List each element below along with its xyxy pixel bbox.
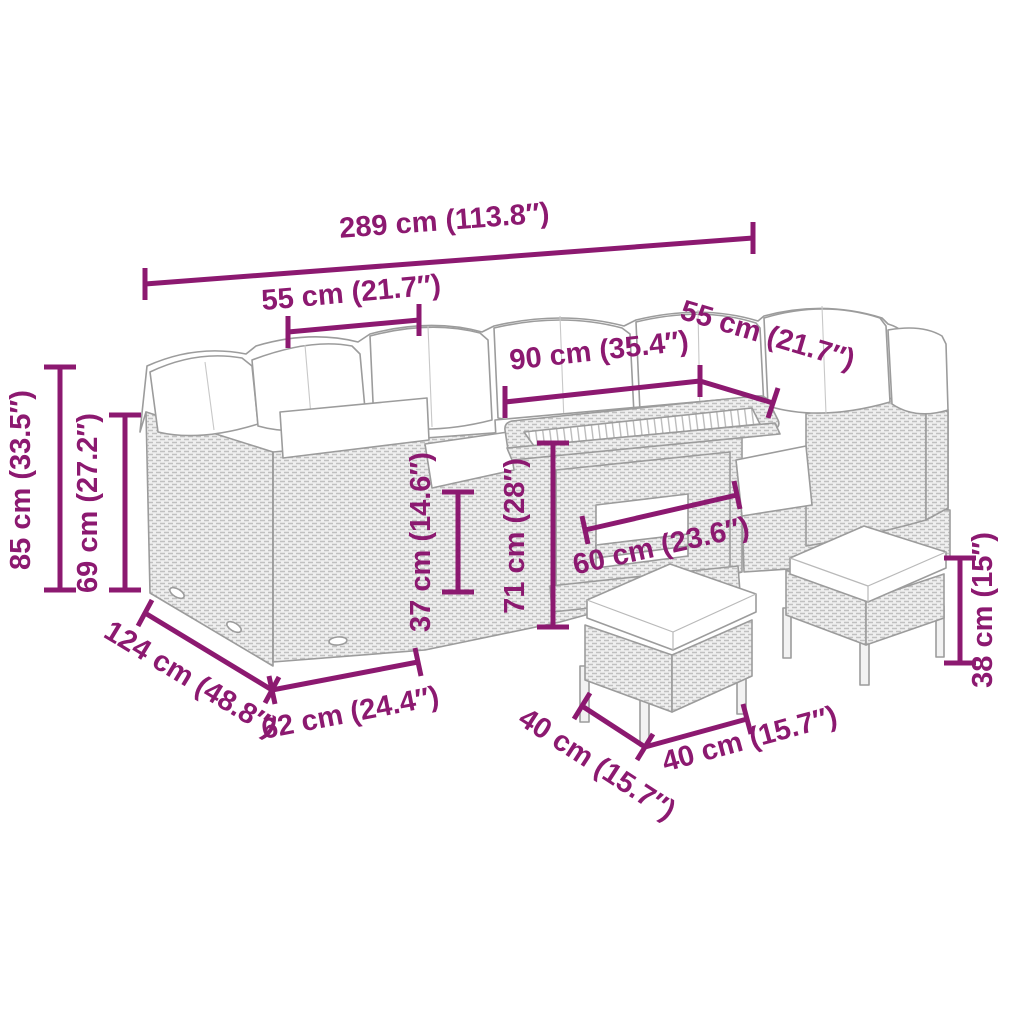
dimension-label: 40 cm (15.7″) [513, 702, 681, 827]
pillow [888, 328, 948, 414]
dimension-label: 289 cm (113.8″) [338, 197, 550, 245]
dimension-label: 69 cm (27.2″) [72, 413, 104, 593]
dimension-label: 55 cm (21.7″) [260, 269, 442, 317]
stool-right [783, 526, 946, 685]
dim-total-width: 289 cm (113.8″) [145, 197, 753, 300]
dimension-label: 37 cm (14.6″) [405, 452, 437, 632]
dimension-label: 85 cm (33.5″) [5, 390, 37, 570]
dim-backrest-height: 69 cm (27.2″) [72, 413, 141, 593]
right-sofa-back-side [926, 402, 948, 520]
dim-stool-depth: 40 cm (15.7″) [513, 693, 681, 827]
dimension-label: 40 cm (15.7″) [659, 700, 841, 778]
dim-stool-width: 40 cm (15.7″) [645, 700, 841, 778]
stool-front [580, 564, 756, 746]
dimension-line [272, 662, 418, 690]
dim-corner-section-width: 62 cm (24.4″) [259, 648, 442, 746]
right-sofa-back-panel [806, 396, 926, 546]
dim-stool-height: 38 cm (15″) [944, 532, 999, 688]
dimension-label: 38 cm (15″) [967, 532, 999, 688]
dim-back-height: 85 cm (33.5″) [5, 367, 76, 590]
diagram-canvas: 289 cm (113.8″) 55 cm (21.7″) 90 cm (35.… [0, 0, 1024, 1024]
product-dimension-diagram: 289 cm (113.8″) 55 cm (21.7″) 90 cm (35.… [0, 0, 1024, 1024]
dimension-line [145, 238, 753, 284]
pillow [150, 356, 258, 436]
dimension-label: 71 cm (28″) [499, 458, 531, 614]
dimension-label: 62 cm (24.4″) [259, 680, 442, 745]
